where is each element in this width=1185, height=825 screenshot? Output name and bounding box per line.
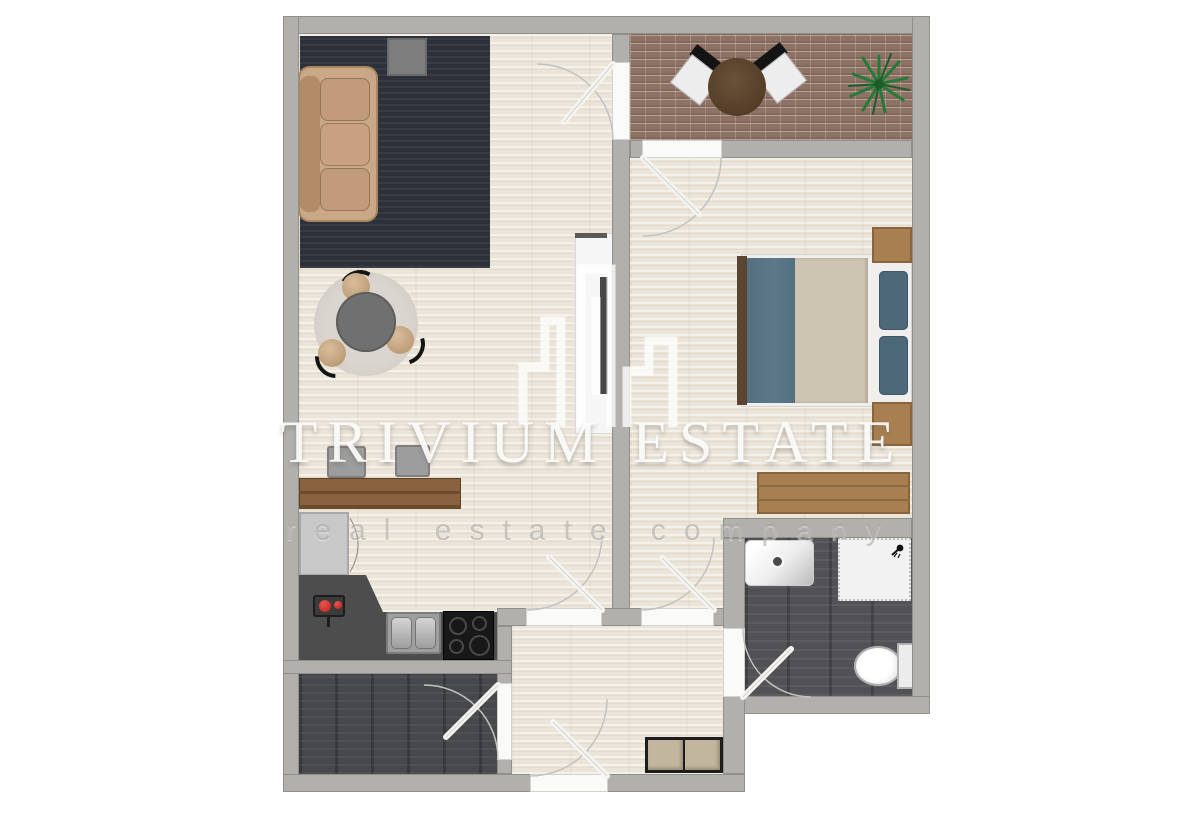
dresser-groove (757, 485, 910, 487)
dining-chair-seat (318, 339, 346, 367)
burner (449, 639, 464, 654)
dining-table (336, 292, 396, 352)
bed-blanket (747, 258, 795, 403)
plant (845, 48, 913, 118)
watermark-subtitle: real estate company (0, 514, 1185, 548)
wall (283, 16, 930, 34)
bed-duvet (795, 258, 868, 403)
coffee-machine (313, 595, 345, 617)
niche-top-bar (575, 233, 607, 238)
burner (449, 617, 467, 635)
pillow (879, 271, 908, 330)
sink-basin (415, 617, 436, 649)
shoe-cabinet (645, 737, 723, 773)
wall (283, 16, 299, 792)
tv-cabinet (387, 38, 427, 76)
balcony-door-opening (612, 62, 630, 140)
bathroom-door-opening (723, 628, 745, 697)
desk-groove (299, 491, 461, 494)
dresser-groove (757, 499, 910, 501)
desk (299, 478, 461, 509)
bedroom-hall-door-opening (641, 608, 714, 626)
wall-kitchen-storage (283, 660, 512, 674)
shoe-cabinet-door (648, 740, 683, 770)
coffee-machine-stem (327, 615, 330, 627)
nightstand (872, 227, 912, 263)
bedroom-balcony-door-opening (642, 140, 722, 158)
balcony-table (708, 58, 766, 116)
sofa-cushion (320, 168, 370, 211)
toilet-bowl (854, 646, 902, 686)
red-knob (319, 600, 331, 612)
bed-headboard (737, 256, 747, 405)
dresser (757, 472, 910, 514)
pillow (879, 336, 908, 395)
red-knob (334, 601, 342, 609)
sofa-backrest (300, 76, 320, 212)
sink-drain (773, 557, 782, 566)
floor-plan: TRIVIUM ESTATE real estate company (0, 0, 1185, 825)
storage-door-opening (497, 683, 512, 760)
living-hall-door-opening (526, 608, 602, 626)
sofa-cushion (320, 78, 370, 121)
sofa-cushion (320, 123, 370, 166)
wall (912, 16, 930, 714)
wall (283, 774, 745, 792)
kitchen-sink (386, 612, 441, 654)
sink-basin (391, 617, 412, 649)
burner (472, 616, 487, 631)
burner (469, 635, 490, 656)
watermark-title: TRIVIUM ESTATE (0, 408, 1185, 477)
shoe-cabinet-door (685, 740, 720, 770)
entrance-door-opening (530, 774, 608, 792)
storage-room-floor (299, 674, 497, 774)
wall (723, 696, 930, 714)
sofa (298, 66, 378, 222)
cooktop (443, 611, 494, 660)
